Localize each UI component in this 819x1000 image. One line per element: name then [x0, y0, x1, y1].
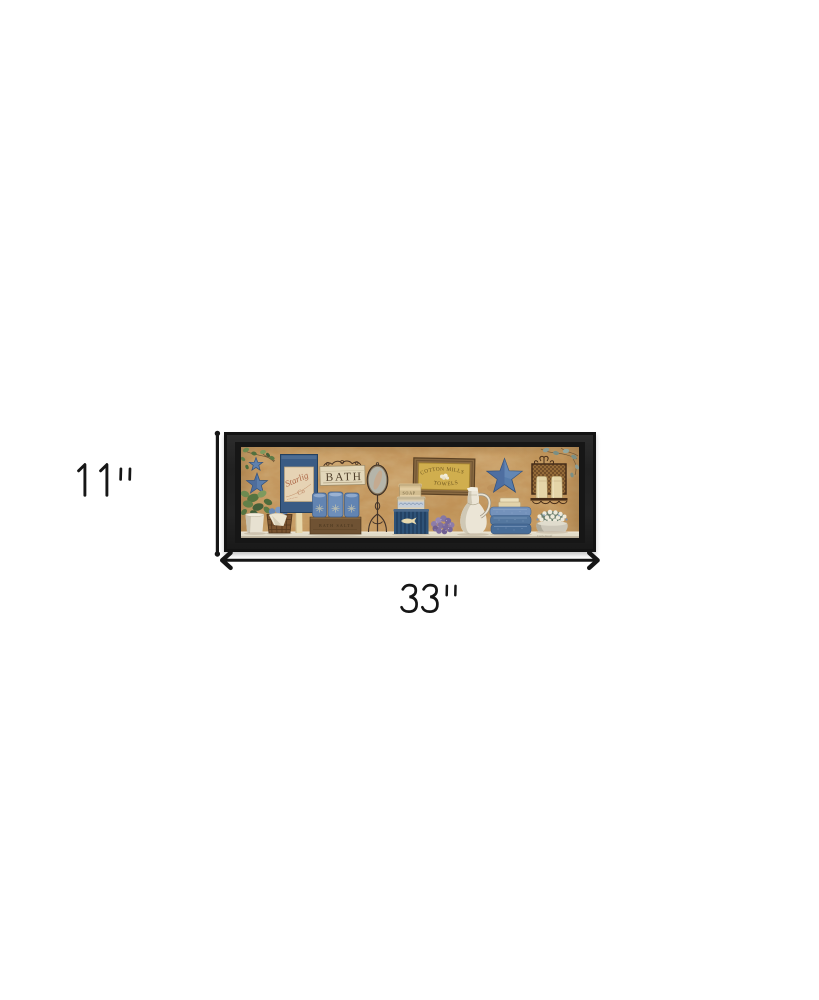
svg-text:BATH SALTS: BATH SALTS — [319, 523, 354, 528]
svg-text:SOAP: SOAP — [403, 490, 416, 495]
svg-text:Carrie Knoff: Carrie Knoff — [537, 534, 552, 538]
